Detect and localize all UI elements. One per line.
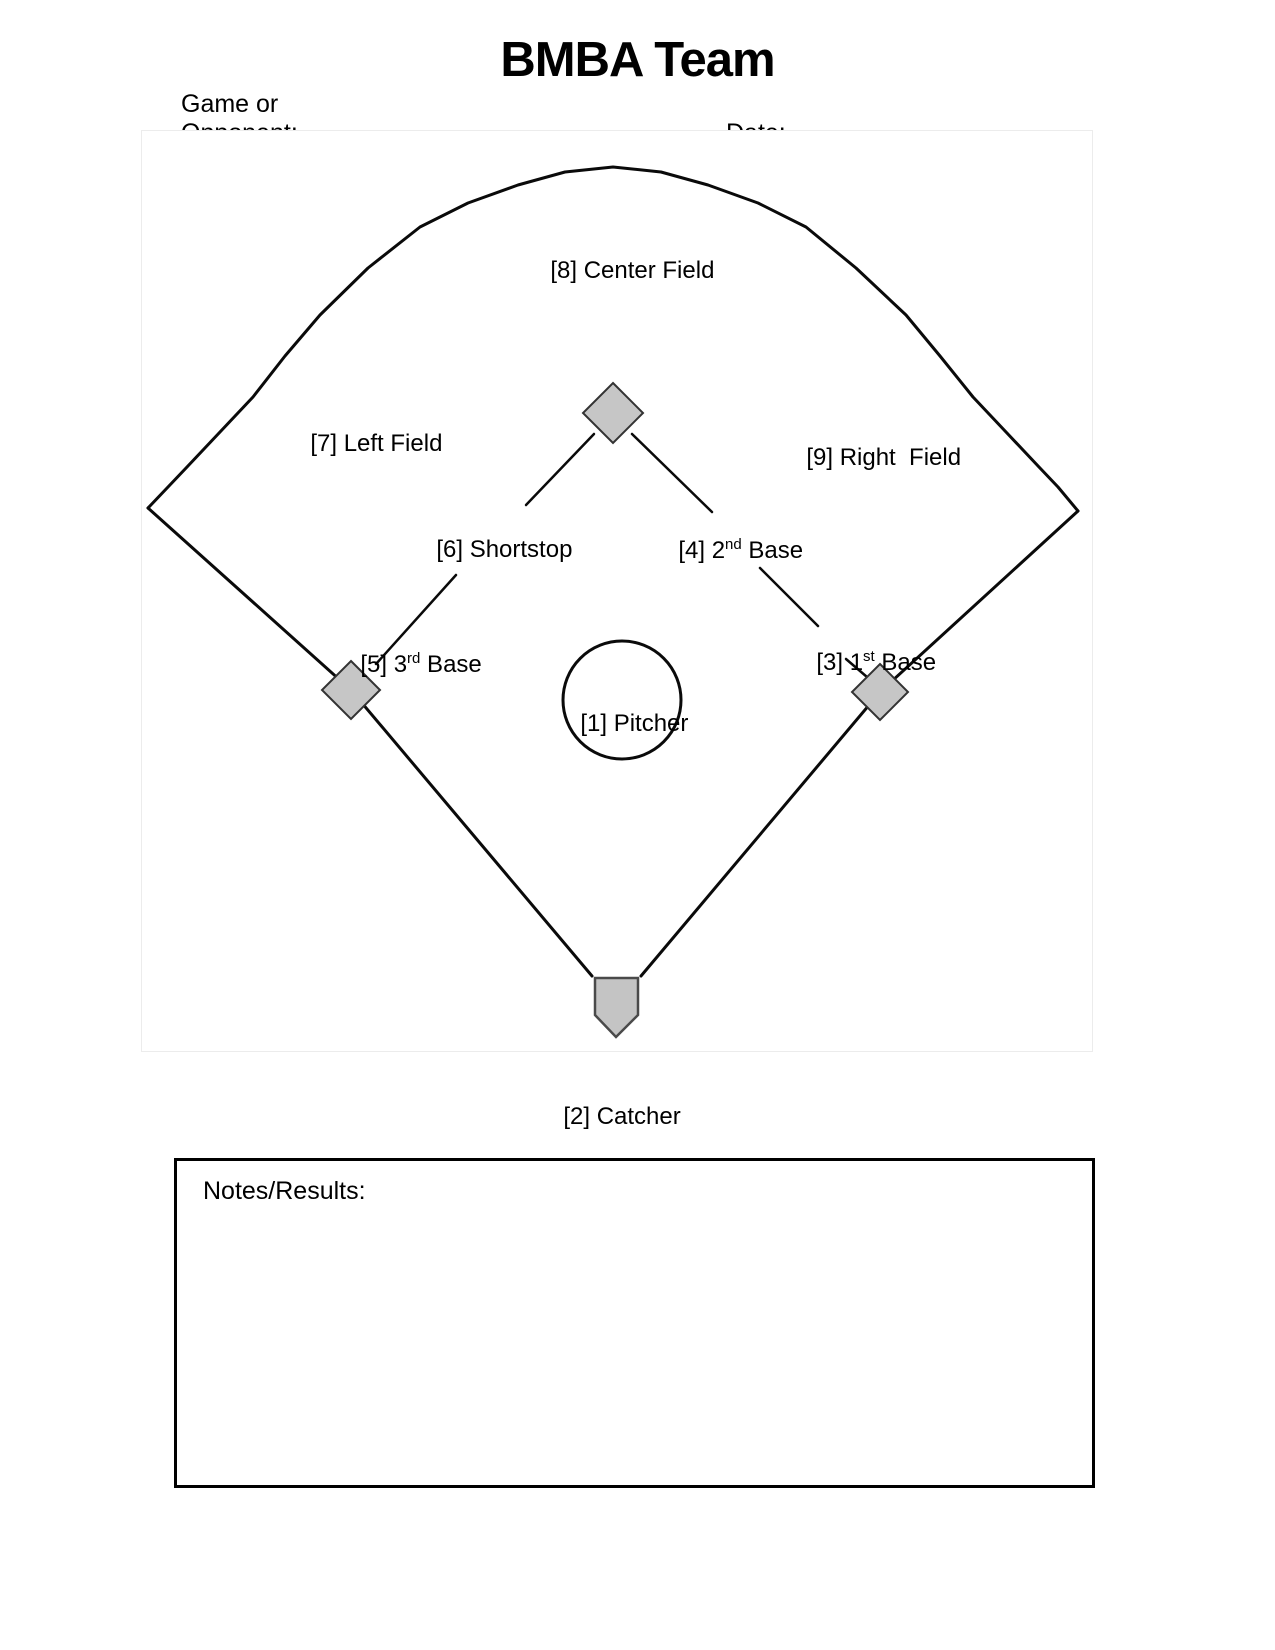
label-right-field-text: [9] Right Field (806, 444, 961, 471)
second-base-marker (583, 383, 643, 443)
label-second-base: [4] 2nd Base (665, 509, 803, 565)
left-foul-line (148, 508, 592, 976)
label-left-field-text: [7] Left Field (310, 430, 442, 457)
label-left-field: [7] Left Field (297, 402, 442, 458)
label-shortstop: [6] Shortstop (423, 508, 572, 564)
label-catcher: [2] Catcher (550, 1075, 681, 1131)
label-first-base-text: [3] 1 (816, 649, 863, 676)
label-center-field: [8] Center Field (537, 229, 714, 285)
second-to-first-baseline-upper (632, 434, 712, 512)
label-second-base-text2: Base (742, 537, 803, 564)
second-to-third-baseline-upper (526, 434, 594, 505)
label-first-base-sup: st (863, 648, 875, 665)
notes-results-label: Notes/Results: (203, 1177, 366, 1206)
label-pitcher-text: [1] Pitcher (580, 710, 688, 737)
home-plate-marker (595, 978, 638, 1037)
label-first-base: [3] 1st Base (803, 621, 936, 677)
label-first-base-text2: Base (875, 649, 936, 676)
label-catcher-text: [2] Catcher (563, 1103, 680, 1130)
label-third-base: [5] 3rd Base (347, 623, 482, 679)
right-foul-line (641, 511, 1078, 976)
label-second-base-text: [4] 2 (678, 537, 725, 564)
label-center-field-text: [8] Center Field (550, 257, 714, 284)
label-third-base-text: [5] 3 (360, 651, 407, 678)
notes-results-box: Notes/Results: (174, 1158, 1095, 1488)
label-third-base-text2: Base (420, 651, 481, 678)
second-to-first-baseline-middle (760, 568, 818, 626)
label-right-field: [9] Right Field (793, 416, 961, 472)
label-shortstop-text: [6] Shortstop (436, 536, 572, 563)
label-pitcher: [1] Pitcher (567, 682, 688, 738)
label-second-base-sup: nd (725, 536, 742, 553)
label-third-base-sup: rd (407, 650, 420, 667)
